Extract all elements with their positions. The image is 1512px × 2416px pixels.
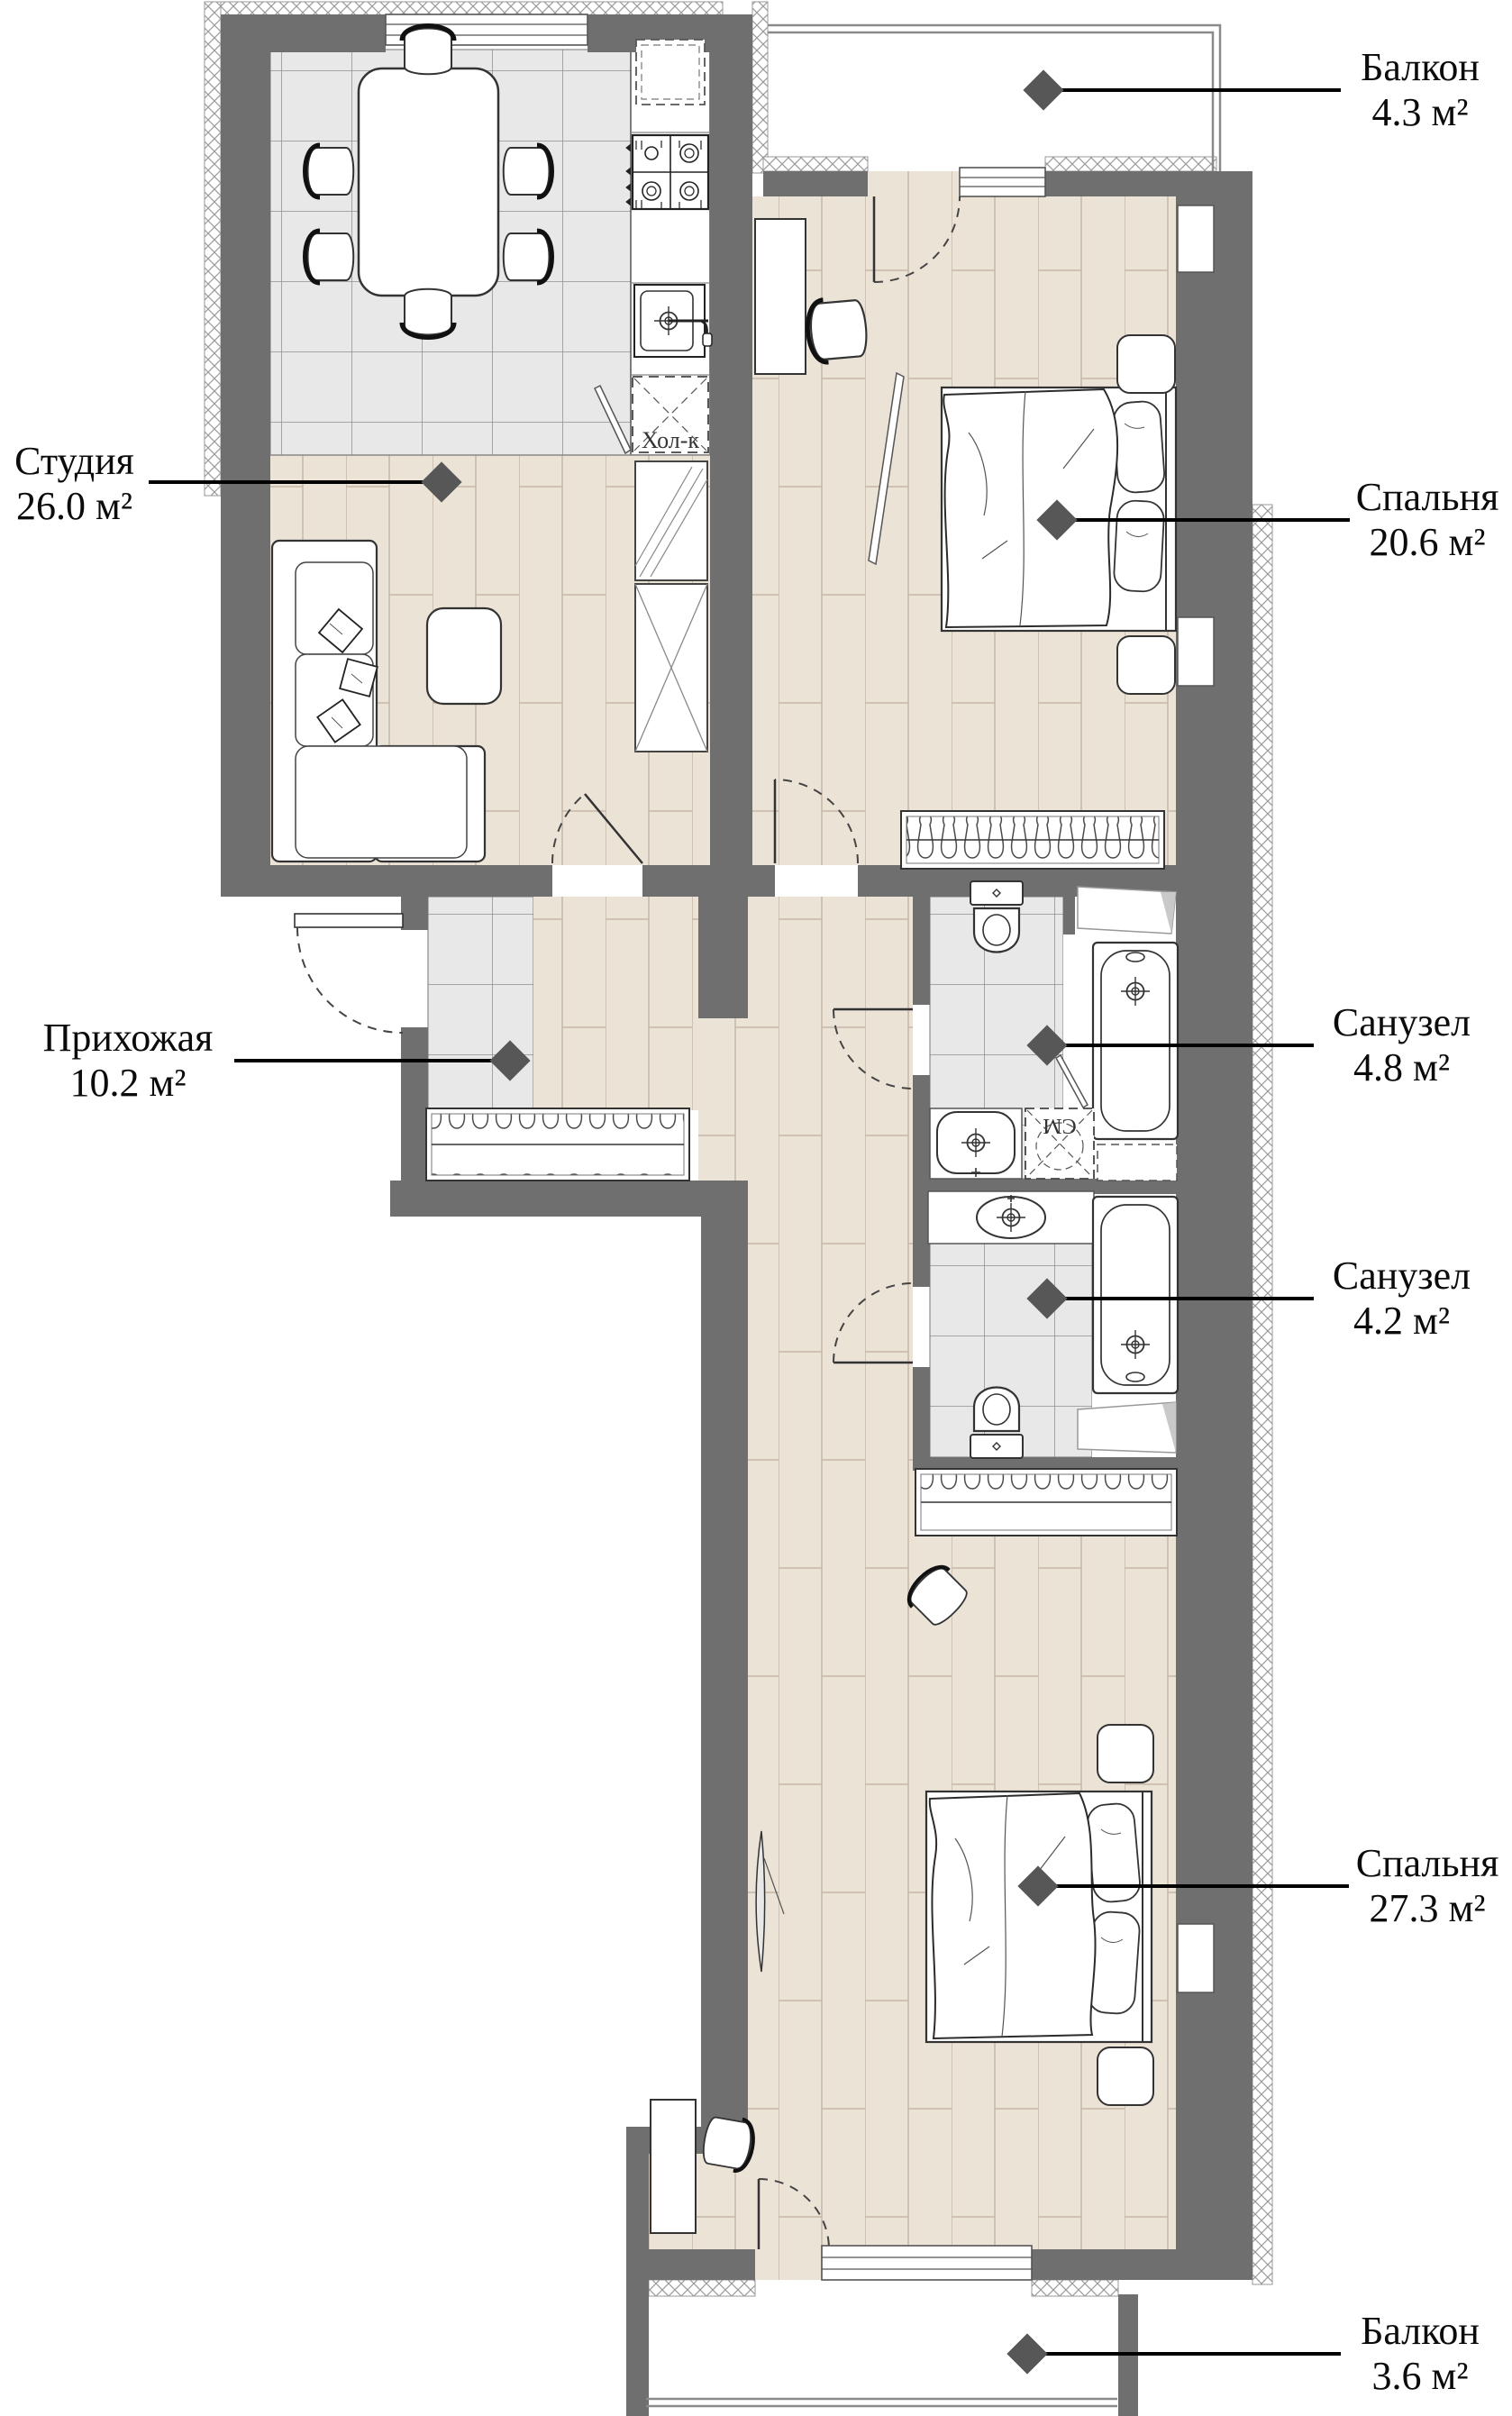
room-label-bedroom-top: Спальня 20.6 м² <box>1343 475 1512 565</box>
room-area: 10.2 м² <box>23 1061 232 1106</box>
toilet-2 <box>970 1388 1023 1459</box>
room-name: Санузел <box>1314 1000 1489 1045</box>
toilet-1 <box>970 881 1023 953</box>
corridor-floor-west <box>698 1018 748 1181</box>
balcony-door-threshold-bottom <box>755 2249 822 2280</box>
hallway-wardrobe <box>426 1108 689 1181</box>
coffee-table <box>427 608 501 704</box>
dining-table <box>359 68 498 296</box>
bedroom2-balcony-window <box>822 2246 1032 2280</box>
bedroom2-desk <box>651 2100 696 2233</box>
marker-balcony-bottom <box>1006 2333 1047 2374</box>
room-label-bathroom-lower: Санузел 4.2 м² <box>1314 1254 1489 1344</box>
radiator-bedroom1-b <box>1178 617 1214 686</box>
bedroom1-nightstand-top <box>1117 335 1175 393</box>
room-name: Спальня <box>1343 475 1512 520</box>
room-area: 26.0 м² <box>0 484 149 529</box>
room-area: 4.8 м² <box>1314 1045 1489 1090</box>
fridge-label: Хол-к <box>642 427 699 453</box>
bedroom1-blanket <box>943 389 1117 627</box>
room-area: 3.6 м² <box>1334 2354 1507 2399</box>
room-area: 4.2 м² <box>1314 1299 1489 1344</box>
bedroom1-dresser <box>755 219 806 374</box>
kitchen-cabinet-dashed <box>636 40 705 105</box>
bedroom1-balcony-window <box>960 168 1045 196</box>
room-label-balcony-bottom: Балкон 3.6 м² <box>1334 2309 1507 2399</box>
balcony-door-threshold-top <box>868 171 960 196</box>
bedroom1-wardrobe <box>901 811 1164 869</box>
bathroom2-shelf <box>1078 1402 1176 1453</box>
hallway-wood-floor <box>533 897 698 1110</box>
room-label-hallway: Прихожая 10.2 м² <box>23 1016 232 1106</box>
fridge: Хол-к <box>633 377 708 453</box>
corridor-floor <box>748 897 913 1471</box>
bedroom2-nightstand-top <box>1098 1725 1153 1782</box>
top-balcony-railing <box>768 25 1220 171</box>
room-name: Балкон <box>1334 2309 1507 2354</box>
bedroom2-blanket <box>930 1793 1096 2038</box>
washer-label: СМ <box>1043 1114 1076 1137</box>
room-area: 4.3 м² <box>1334 90 1507 135</box>
kitchen-sink <box>634 285 712 357</box>
radiator-bedroom1-a <box>1178 205 1214 272</box>
bottom-balcony-railing <box>646 2399 1117 2406</box>
room-label-bedroom-bottom: Спальня 27.3 м² <box>1343 1841 1512 1931</box>
room-name: Санузел <box>1314 1254 1489 1299</box>
room-area: 20.6 м² <box>1343 520 1512 565</box>
room-name: Спальня <box>1343 1841 1512 1886</box>
room-name: Студия <box>0 439 149 484</box>
room-name: Балкон <box>1334 45 1507 90</box>
stove <box>626 135 708 209</box>
room-label-studio: Студия 26.0 м² <box>0 439 149 529</box>
studio-wardrobe-lower <box>635 584 707 752</box>
bedroom2-wardrobe <box>915 1469 1177 1536</box>
floor-plan-page: Хол-к <box>0 0 1512 2416</box>
bedroom2-nightstand-bottom <box>1098 2047 1153 2105</box>
bathtub-1 <box>1093 943 1178 1139</box>
bedroom1-nightstand-bottom <box>1117 636 1175 694</box>
studio-wardrobe-upper <box>635 461 707 580</box>
bathroom1-cabinet-dashed <box>1098 1144 1177 1181</box>
floor-plan-drawing: Хол-к <box>0 0 1512 2416</box>
radiator-bedroom2 <box>1178 1924 1214 1992</box>
bathtub-2 <box>1093 1197 1178 1393</box>
bathroom1-sink <box>930 1108 1022 1179</box>
room-label-balcony-top: Балкон 4.3 м² <box>1334 45 1507 135</box>
room-name: Прихожая <box>23 1016 232 1061</box>
room-area: 27.3 м² <box>1343 1886 1512 1931</box>
marker-balcony-top <box>1023 69 1063 110</box>
hallway-tile-floor <box>428 897 533 1110</box>
bedroom2-bed <box>926 1791 1152 2042</box>
washing-machine: СМ <box>1025 1108 1094 1179</box>
bedroom1-chair <box>806 296 869 364</box>
room-label-bathroom-upper: Санузел 4.8 м² <box>1314 1000 1489 1090</box>
bathroom2-sink-counter <box>928 1191 1094 1244</box>
entrance-door <box>295 914 403 1033</box>
